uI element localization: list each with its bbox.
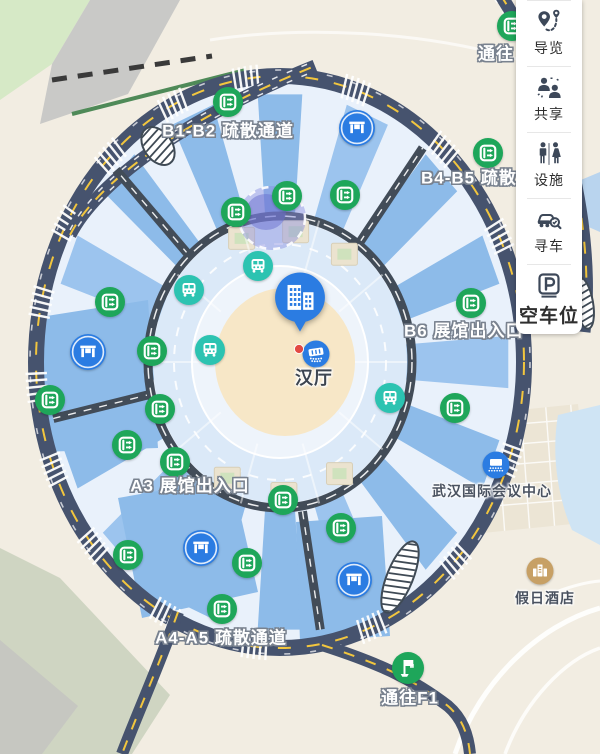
evacuation-exit-marker[interactable] xyxy=(137,336,168,367)
panel-label-find-car: 寻车 xyxy=(534,236,564,256)
map-label-f1[interactable]: 通往F1 xyxy=(381,684,439,709)
shuttle-stop-marker[interactable] xyxy=(174,275,204,305)
evacuation-exit-marker[interactable] xyxy=(232,548,263,579)
shuttle-stop-marker[interactable] xyxy=(195,335,225,365)
evacuation-exit-marker[interactable] xyxy=(145,394,176,425)
current-location-dot[interactable] xyxy=(294,344,305,355)
map-label-a4a5[interactable]: A4-A5 疏散通道 xyxy=(155,624,287,649)
share-people-icon xyxy=(535,74,563,102)
hall-entrance-marker[interactable] xyxy=(183,530,220,567)
map-label-hanting[interactable]: 汉厅 xyxy=(295,364,333,390)
hall-entrance-marker[interactable] xyxy=(339,110,376,147)
evacuation-exit-marker[interactable] xyxy=(456,288,487,319)
guide-route-icon xyxy=(535,8,563,36)
shuttle-stop-marker[interactable] xyxy=(375,383,405,413)
evacuation-exit-marker[interactable] xyxy=(207,594,238,625)
evacuation-exit-marker[interactable] xyxy=(35,385,66,416)
panel-label-share: 共享 xyxy=(534,104,564,124)
conference-center-marker[interactable] xyxy=(483,452,510,479)
selected-place-pin[interactable] xyxy=(273,271,327,333)
map-tools-panel: 导览 共享 设施 xyxy=(516,0,582,334)
panel-item-parking[interactable]: 空车位 xyxy=(516,264,582,334)
facilities-restroom-icon xyxy=(535,140,563,168)
panel-item-guide[interactable]: 导览 xyxy=(516,0,582,66)
map-label-b6[interactable]: B6 展馆出入口 xyxy=(404,317,523,342)
panel-item-facilities[interactable]: 设施 xyxy=(516,132,582,198)
panel-item-share[interactable]: 共享 xyxy=(516,66,582,132)
panel-item-find-car[interactable]: 寻车 xyxy=(516,198,582,264)
panel-label-facilities: 设施 xyxy=(534,170,564,190)
evacuation-exit-marker[interactable] xyxy=(95,287,126,318)
map-label-tongwang[interactable]: 通往 xyxy=(478,40,514,65)
evacuation-exit-marker[interactable] xyxy=(326,513,357,544)
panel-label-parking: 空车位 xyxy=(519,301,579,328)
hall-entrance-marker[interactable] xyxy=(70,334,107,371)
evacuation-exit-marker[interactable] xyxy=(272,181,303,212)
f1-passage-marker[interactable] xyxy=(392,652,425,685)
evacuation-exit-marker[interactable] xyxy=(268,485,299,516)
map-label-a3[interactable]: A3 展馆出入口 xyxy=(130,472,249,497)
map-label-b1b2[interactable]: B1-B2 疏散通道 xyxy=(162,117,294,142)
find-car-icon xyxy=(535,206,563,234)
hall-entrance-marker[interactable] xyxy=(336,562,373,599)
evacuation-exit-marker[interactable] xyxy=(330,180,361,211)
evacuation-exit-marker[interactable] xyxy=(113,540,144,571)
evacuation-exit-marker[interactable] xyxy=(440,393,471,424)
panel-label-guide: 导览 xyxy=(534,38,564,58)
parking-icon xyxy=(535,271,563,299)
shuttle-stop-marker[interactable] xyxy=(243,251,273,281)
map-label-conf[interactable]: 武汉国际会议中心 xyxy=(432,481,552,501)
map-canvas[interactable]: B1-B2 疏散通道B4-B5 疏散通道B6 展馆出入口A3 展馆出入口A4-A… xyxy=(0,0,600,754)
map-label-hotel[interactable]: 假日酒店 xyxy=(515,588,575,608)
hotel-marker[interactable] xyxy=(527,558,554,585)
evacuation-exit-marker[interactable] xyxy=(213,87,244,118)
evacuation-exit-marker[interactable] xyxy=(112,430,143,461)
evacuation-exit-marker[interactable] xyxy=(221,197,252,228)
